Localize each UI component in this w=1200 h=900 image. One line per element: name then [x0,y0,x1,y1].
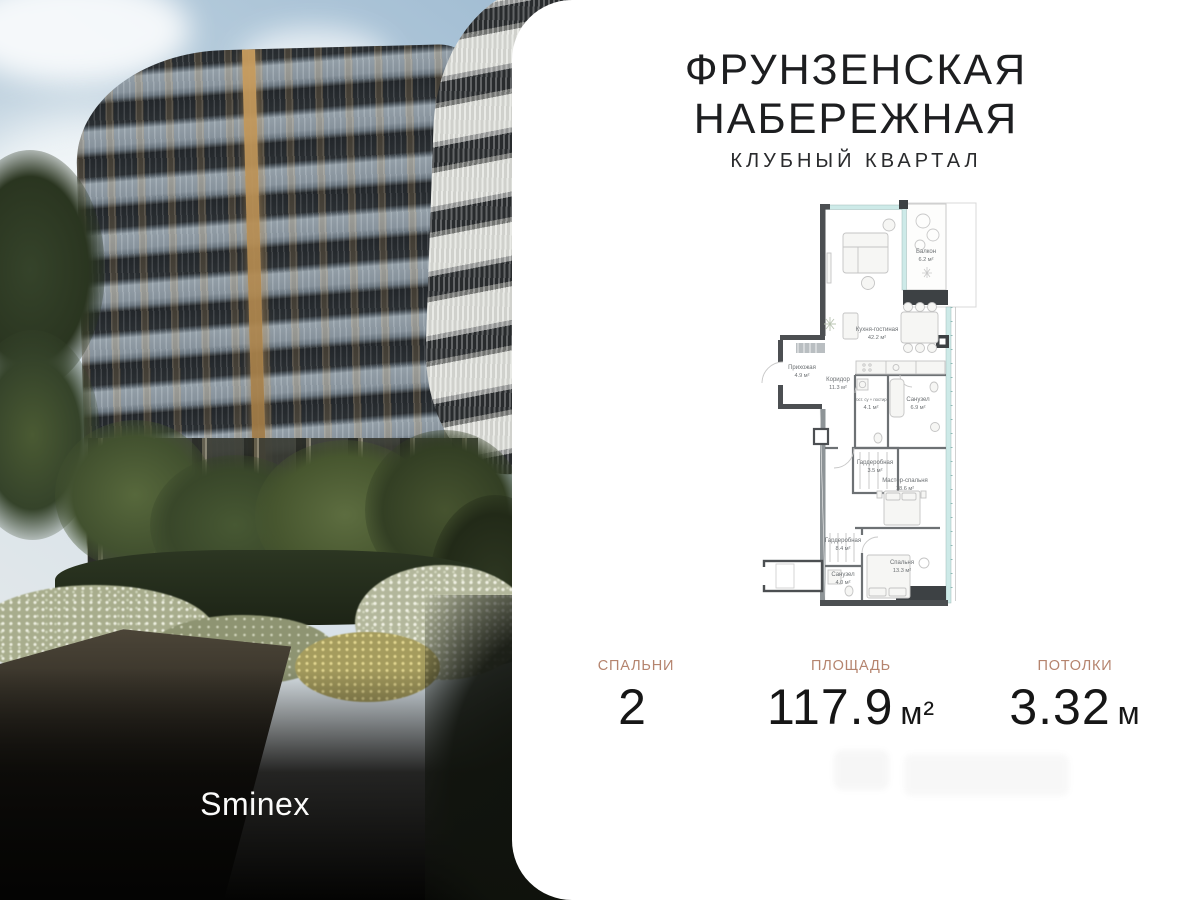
building-photo: Sminex [0,0,580,900]
svg-text:Балкон: Балкон [916,249,936,255]
svg-text:11.3 м²: 11.3 м² [829,385,847,391]
svg-text:6.9 м²: 6.9 м² [910,405,925,411]
watermark-shape [904,754,1069,796]
svg-text:Гардеробная: Гардеробная [825,538,861,544]
stat-label: СПАЛЬНИ [598,658,674,674]
svg-text:Гардеробная: Гардеробная [857,460,893,466]
svg-text:6.2 м²: 6.2 м² [918,257,933,263]
stat-ceilings: ПОТОЛКИ 3.32м [1009,658,1140,736]
svg-text:Мастер-спальня: Мастер-спальня [882,478,928,484]
stat-label: ПОТОЛКИ [1009,658,1140,674]
svg-text:18.6 м²: 18.6 м² [896,486,914,492]
svg-text:13.3 м²: 13.3 м² [893,568,911,574]
stat-number: 3.32 [1009,679,1110,735]
stat-value: 2 [598,678,674,736]
svg-text:Кухня-гостиная: Кухня-гостиная [856,327,898,333]
info-panel: ФРУНЗЕНСКАЯ НАБЕРЕЖНАЯ КЛУБНЫЙ КВАРТАЛ [512,0,1200,900]
svg-text:Прихожая: Прихожая [788,365,816,371]
stat-unit: м² [900,695,935,731]
svg-text:8.4 м²: 8.4 м² [835,546,850,552]
svg-text:Санузел: Санузел [906,397,930,403]
project-subtitle: КЛУБНЫЙ КВАРТАЛ [512,150,1200,173]
project-title-line1: ФРУНЗЕНСКАЯ [512,46,1200,95]
svg-text:3.5 м²: 3.5 м² [867,468,882,474]
stat-number: 117.9 [767,679,893,735]
svg-text:Санузел: Санузел [831,572,855,578]
stat-number: 2 [618,679,647,735]
balcony [906,204,946,290]
svg-text:42.2 м²: 42.2 м² [868,335,886,341]
svg-text:Гост. су + постир.: Гост. су + постир. [854,397,888,402]
project-title-line2: НАБЕРЕЖНАЯ [512,95,1200,144]
brand-logo: Sminex [200,786,310,823]
svg-text:4.0 м²: 4.0 м² [835,580,850,586]
stat-value: 117.9м² [767,678,935,736]
svg-text:4.1 м²: 4.1 м² [863,405,878,411]
stat-value: 3.32м [1009,678,1140,736]
svg-text:Спальня: Спальня [890,560,914,566]
faint-watermark [834,742,1074,800]
stat-bedrooms: СПАЛЬНИ 2 [598,658,674,736]
stat-label: ПЛОЩАДЬ [767,658,935,674]
stat-area: ПЛОЩАДЬ 117.9м² [767,658,935,736]
watermark-shape [834,750,889,790]
svg-text:4.9 м²: 4.9 м² [794,373,809,379]
project-title: ФРУНЗЕНСКАЯ НАБЕРЕЖНАЯ [512,46,1200,144]
stat-unit: м [1118,695,1141,731]
listing-card: Sminex ФРУНЗЕНСКАЯ НАБЕРЕЖНАЯ КЛУБНЫЙ КВ… [0,0,1200,900]
floor-plan: Балкон 6.2 м² Кухня-гостиная 42.2 м² При… [750,195,985,625]
svg-text:Коридор: Коридор [826,377,850,383]
